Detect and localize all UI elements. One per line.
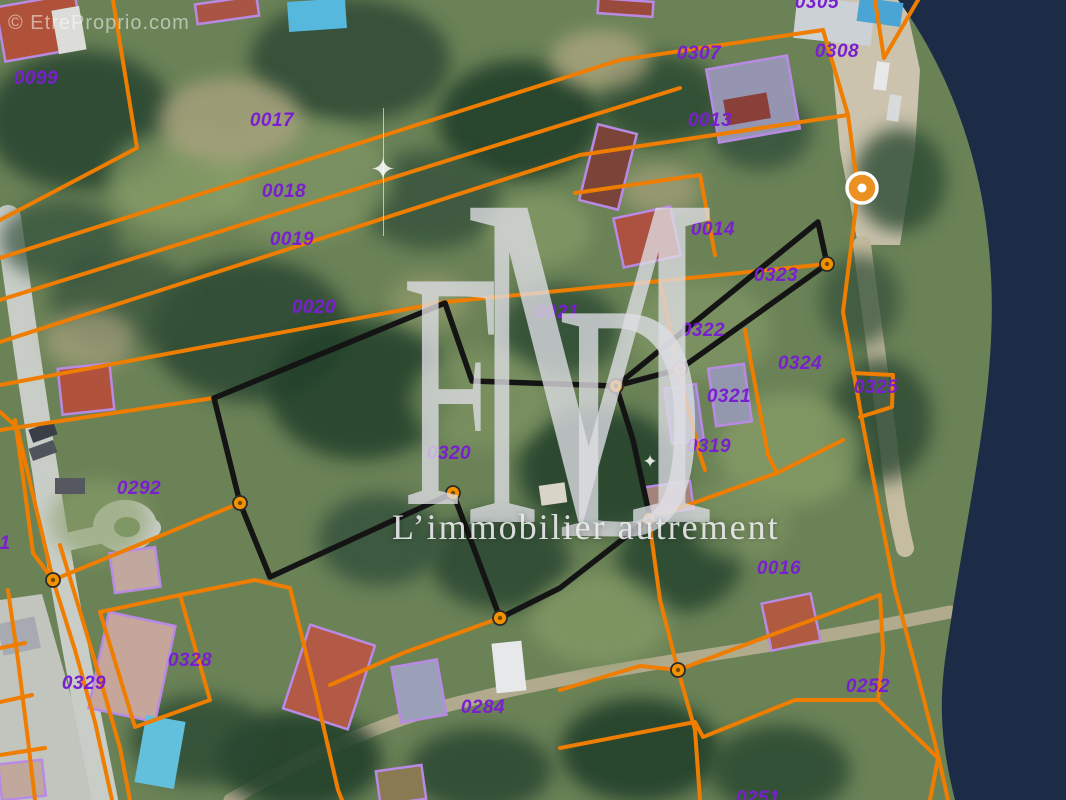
copyright-watermark: © EtreProprio.com	[8, 12, 190, 35]
vertex-dot-center	[51, 578, 55, 582]
parcel-number-label[interactable]: 0323	[754, 265, 798, 287]
parcel-number-label[interactable]: 0251	[736, 788, 780, 800]
vertex-dot-center	[238, 501, 242, 505]
parcel-number-label[interactable]: 0305	[795, 0, 839, 14]
parcel-number-label[interactable]: 0018	[262, 181, 306, 203]
parcel-number-label[interactable]: 0252	[846, 676, 890, 698]
parcel-number-label[interactable]: 0329	[62, 673, 106, 695]
parcel-number-label[interactable]: 0308	[815, 41, 859, 63]
location-marker-layer	[847, 173, 877, 203]
logo-tagline: L’immobilier autrement	[392, 506, 780, 548]
parcel-number-label[interactable]: 0020	[292, 297, 336, 319]
parcel-number-label[interactable]: 0284	[461, 697, 505, 719]
building	[55, 478, 85, 494]
building	[598, 0, 654, 17]
vegetation-patch	[550, 30, 650, 90]
cadastral-map: 0099001700180019002000210305030703080013…	[0, 0, 1066, 800]
building	[376, 765, 426, 800]
vertex-dot-center	[676, 668, 680, 672]
building	[0, 760, 46, 800]
parcel-number-label[interactable]: 0324	[778, 353, 822, 375]
parcel-number-label[interactable]: 0307	[677, 43, 721, 65]
parcel-number-label[interactable]: 0328	[168, 650, 212, 672]
location-marker-dot	[858, 184, 867, 193]
parcel-number-label[interactable]: 0019	[270, 229, 314, 251]
building	[287, 0, 347, 32]
building	[391, 659, 446, 722]
parcel-number-label[interactable]: 0099	[14, 68, 58, 90]
parcel-number-label[interactable]: 0325	[854, 377, 898, 399]
vertex-dot-center	[825, 262, 829, 266]
building	[491, 641, 526, 694]
parcel-number-label[interactable]: 1	[0, 533, 11, 555]
parcel-number-label[interactable]: 0016	[757, 558, 801, 580]
parcel-number-label[interactable]: 0292	[117, 478, 161, 500]
sparkle-icon: ✦	[370, 153, 395, 188]
parcel-number-label[interactable]: 0017	[250, 110, 294, 132]
